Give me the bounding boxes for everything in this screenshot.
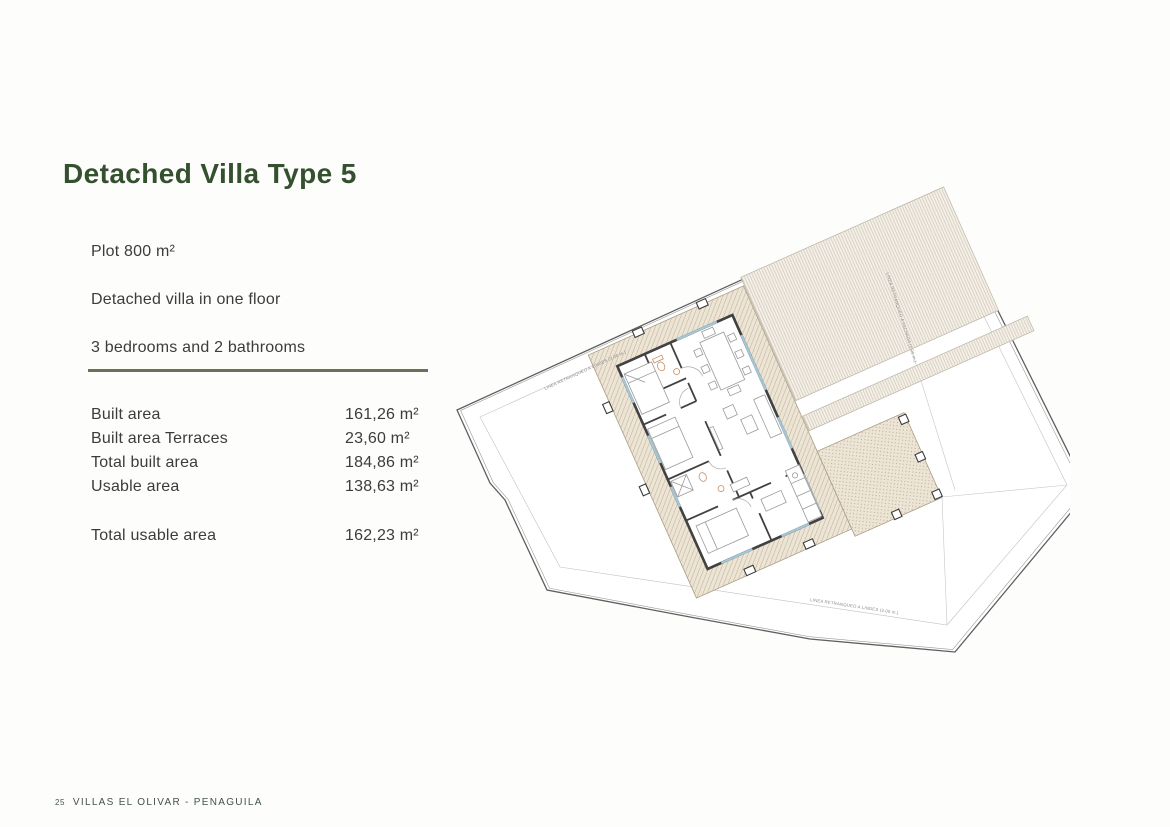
area-label: Built area Terraces xyxy=(91,430,228,448)
area-label: Total usable area xyxy=(91,527,216,545)
table-row: Built area Terraces 23,60 m² xyxy=(91,430,451,454)
brochure-page: Detached Villa Type 5 Plot 800 m² Detach… xyxy=(0,0,1170,827)
area-value: 161,26 m² xyxy=(345,406,419,424)
area-label: Total built area xyxy=(91,454,198,472)
section-divider xyxy=(88,369,428,372)
table-row: Total built area 184,86 m² xyxy=(91,454,451,478)
total-usable-row: Total usable area 162,23 m² xyxy=(91,527,451,551)
floor-plan: LINEA RETRANQUEO A LINDES (3.00 m.) LINE… xyxy=(450,155,1070,675)
areas-table: Built area 161,26 m² Built area Terraces… xyxy=(91,406,451,502)
area-value: 162,23 m² xyxy=(345,527,419,545)
area-value: 138,63 m² xyxy=(345,478,419,496)
rooms-line: 3 bedrooms and 2 bathrooms xyxy=(91,339,305,357)
plot-size-line: Plot 800 m² xyxy=(91,243,175,261)
page-number: 25 xyxy=(55,798,65,807)
area-label: Built area xyxy=(91,406,161,424)
page-title: Detached Villa Type 5 xyxy=(63,158,357,190)
page-footer: 25VILLAS EL OLIVAR - PENAGUILA xyxy=(55,792,263,810)
area-value: 23,60 m² xyxy=(345,430,410,448)
floors-line: Detached villa in one floor xyxy=(91,291,281,309)
table-row: Built area 161,26 m² xyxy=(91,406,451,430)
area-value: 184,86 m² xyxy=(345,454,419,472)
area-label: Usable area xyxy=(91,478,179,496)
table-row: Usable area 138,63 m² xyxy=(91,478,451,502)
footer-text: VILLAS EL OLIVAR - PENAGUILA xyxy=(73,797,263,808)
site-plan-drawing: LINEA RETRANQUEO A LINDES (3.00 m.) LINE… xyxy=(450,155,1070,675)
